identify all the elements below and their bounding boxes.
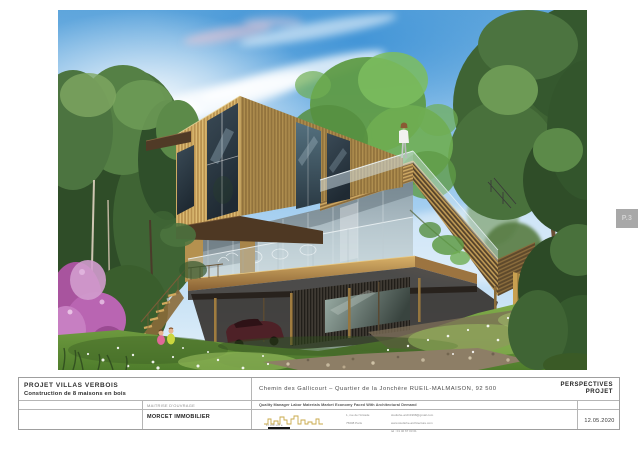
titleblock-divider [251, 378, 252, 429]
client-name: MORCET IMMOBILIER [147, 414, 210, 420]
sheet-type-line1: PERSPECTIVES [561, 382, 614, 389]
architectural-render [58, 10, 587, 370]
sheet-type: PERSPECTIVES PROJET [561, 382, 614, 396]
project-address: Chemin des Gallicourt – Quartier de la J… [259, 386, 496, 392]
logo-underline-bar [268, 427, 290, 429]
project-subtitle: Construction de 8 maisons en bois [24, 391, 126, 397]
sheet-type-line2: PROJET [561, 389, 614, 396]
architect-address: 1, rue de l'Arcade 75008 Paris [346, 413, 369, 425]
titleblock-divider [142, 400, 143, 429]
titleblock-divider [19, 400, 619, 401]
sheet-date: 12.05.2020 [578, 418, 621, 424]
project-title: PROJET VILLAS VERBOIS [24, 382, 118, 389]
titleblock-divider [19, 409, 619, 410]
page-number-tab: P.3 [616, 209, 638, 228]
presentation-sheet: P.3 PROJET VILLAS VERBOIS Construction d… [0, 0, 640, 452]
architect-contact: studiohe-archi1998@gmail.com www.studioh… [391, 413, 433, 433]
villa-rendering-svg [58, 10, 587, 370]
title-block: PROJET VILLAS VERBOIS Construction de 8 … [18, 377, 620, 430]
page-number-label: P.3 [622, 215, 632, 222]
client-label: MAITRISE D'OUVRAGE [147, 403, 195, 408]
tagline: Quality Manager Labor Materials Market E… [259, 403, 417, 407]
titleblock-divider [577, 400, 578, 429]
